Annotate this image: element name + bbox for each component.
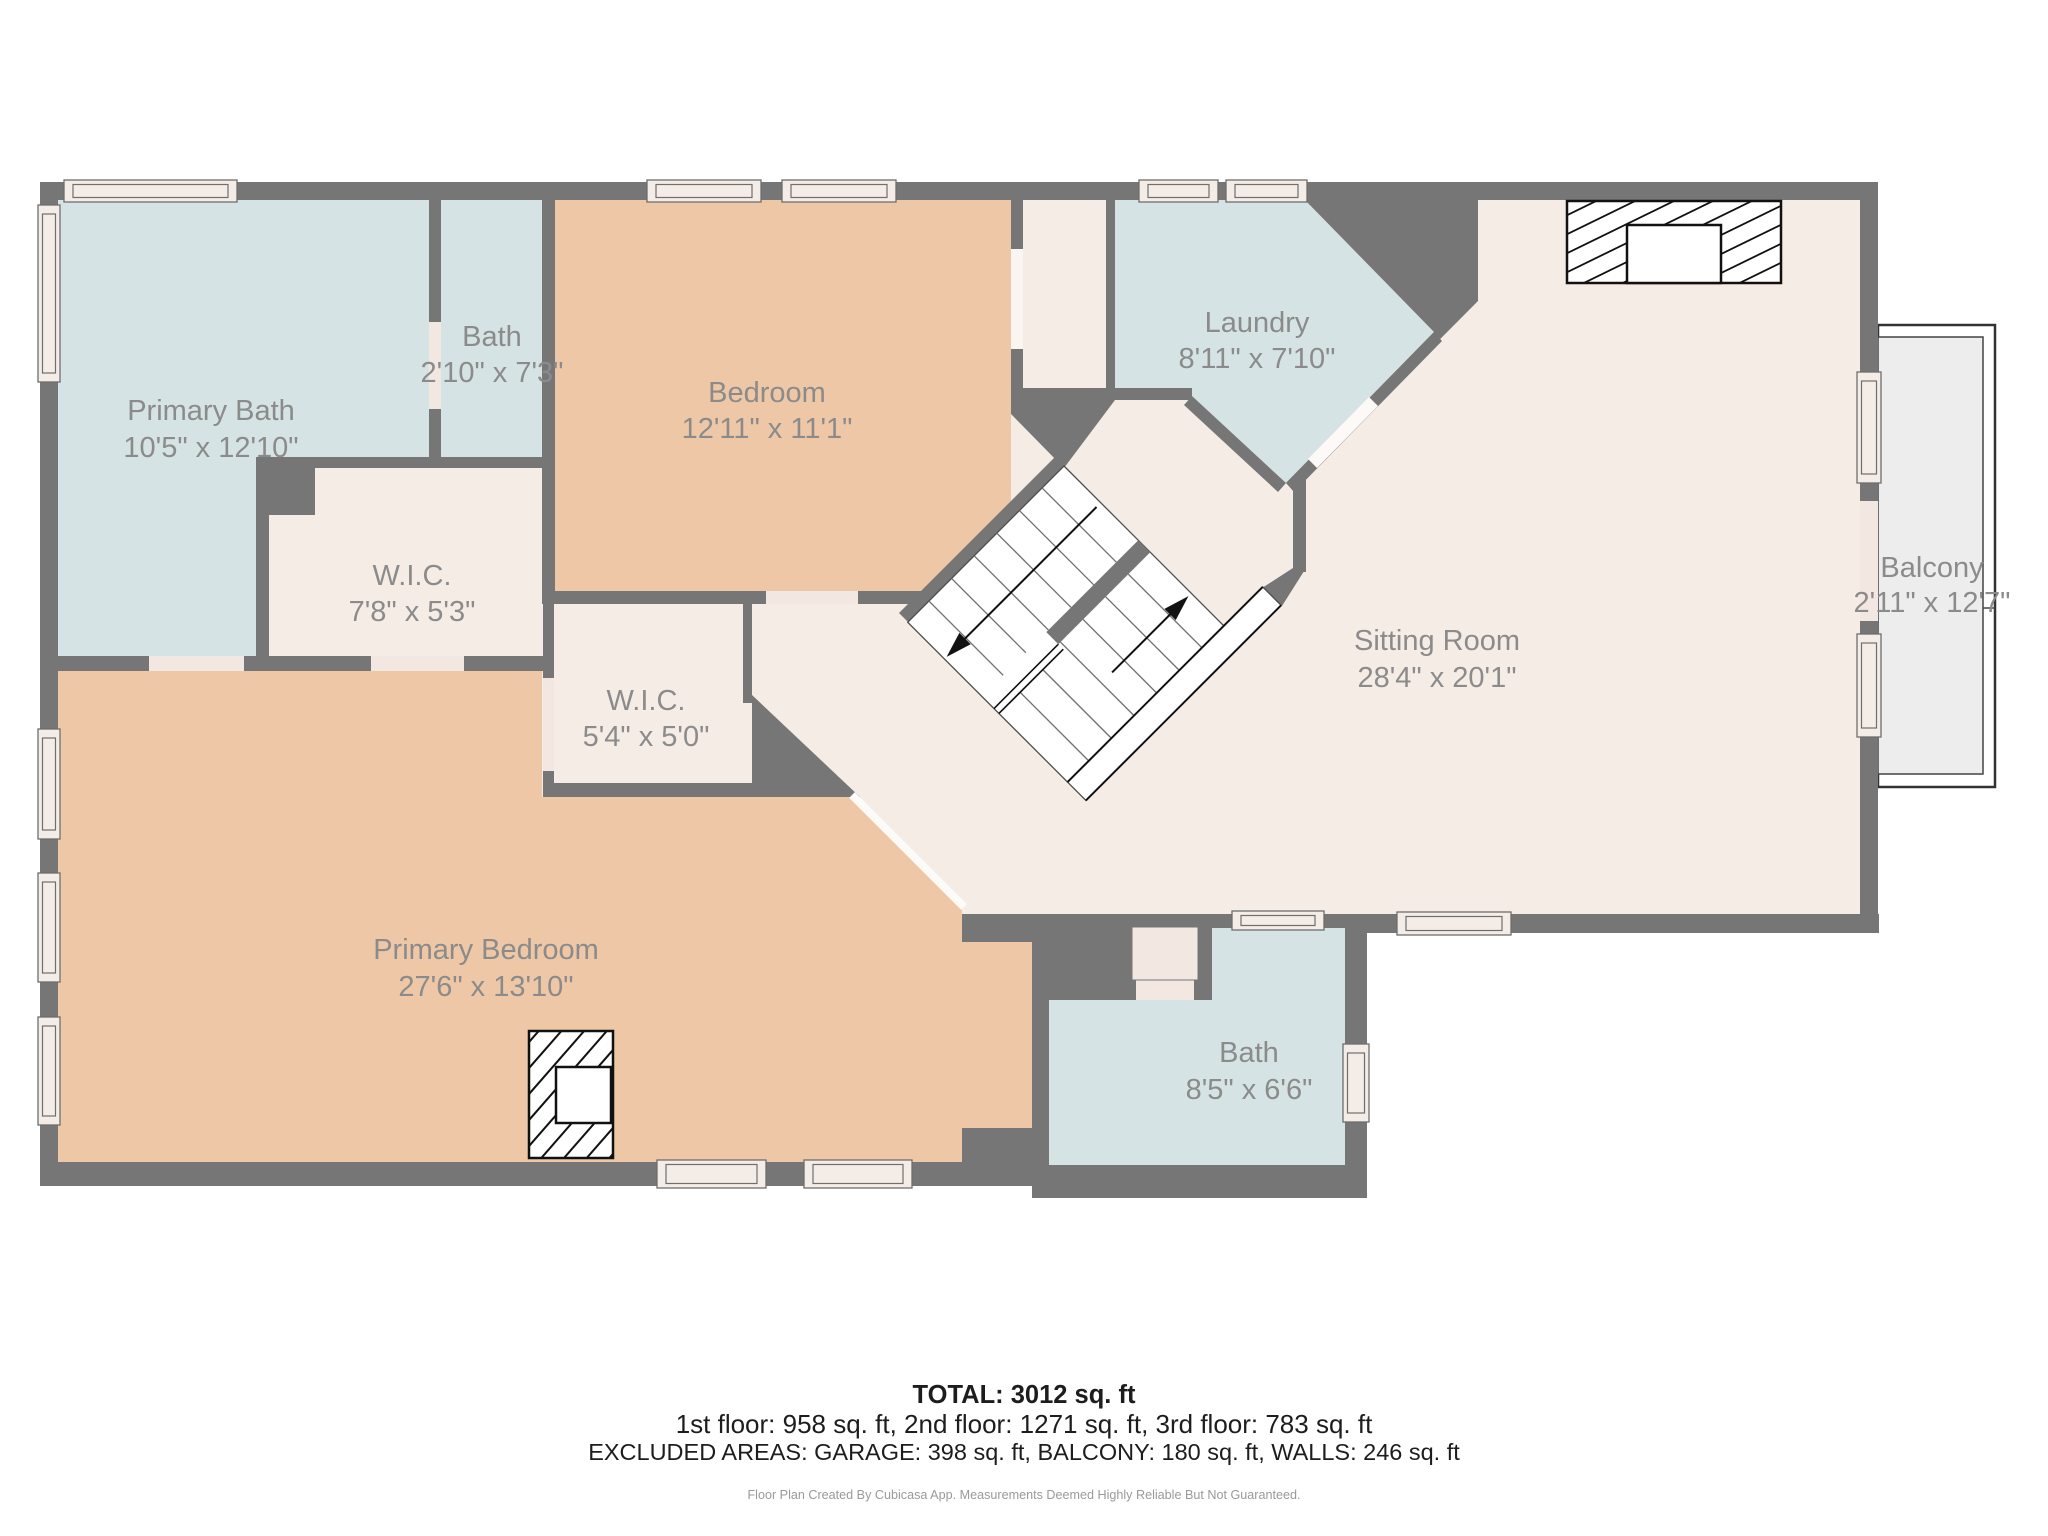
- svg-text:Primary Bedroom: Primary Bedroom: [373, 934, 599, 966]
- svg-text:Bedroom: Bedroom: [708, 377, 826, 409]
- svg-text:EXCLUDED AREAS: GARAGE: 398 sq: EXCLUDED AREAS: GARAGE: 398 sq. ft, BALC…: [588, 1439, 1460, 1465]
- svg-text:8'5" x 6'6": 8'5" x 6'6": [1186, 1074, 1313, 1106]
- svg-text:28'4" x 20'1": 28'4" x 20'1": [1357, 662, 1516, 694]
- svg-text:TOTAL: 3012 sq. ft: TOTAL: 3012 sq. ft: [913, 1381, 1136, 1409]
- svg-text:2'11" x 12'7": 2'11" x 12'7": [1854, 587, 2011, 619]
- svg-text:1st floor: 958 sq. ft, 2nd flo: 1st floor: 958 sq. ft, 2nd floor: 1271 s…: [676, 1409, 1373, 1439]
- svg-text:5'4" x 5'0": 5'4" x 5'0": [583, 721, 710, 753]
- svg-text:8'11" x 7'10": 8'11" x 7'10": [1179, 343, 1336, 375]
- svg-text:10'5" x 12'10": 10'5" x 12'10": [123, 432, 298, 464]
- svg-text:W.I.C.: W.I.C.: [607, 685, 686, 717]
- svg-text:Bath: Bath: [1219, 1037, 1279, 1069]
- svg-text:2'10" x 7'3": 2'10" x 7'3": [421, 357, 564, 389]
- svg-text:W.I.C.: W.I.C.: [373, 560, 452, 592]
- svg-text:27'6" x 13'10": 27'6" x 13'10": [398, 971, 573, 1003]
- svg-text:7'8" x 5'3": 7'8" x 5'3": [349, 596, 476, 628]
- svg-text:Balcony: Balcony: [1880, 552, 1984, 584]
- svg-text:Primary Bath: Primary Bath: [127, 395, 295, 427]
- svg-text:Laundry: Laundry: [1205, 307, 1310, 339]
- svg-text:Floor Plan Created By Cubicasa: Floor Plan Created By Cubicasa App. Meas…: [747, 1488, 1300, 1502]
- svg-text:Sitting Room: Sitting Room: [1354, 625, 1520, 657]
- svg-text:12'11" x 11'1": 12'11" x 11'1": [682, 413, 853, 445]
- svg-text:Bath: Bath: [462, 321, 522, 353]
